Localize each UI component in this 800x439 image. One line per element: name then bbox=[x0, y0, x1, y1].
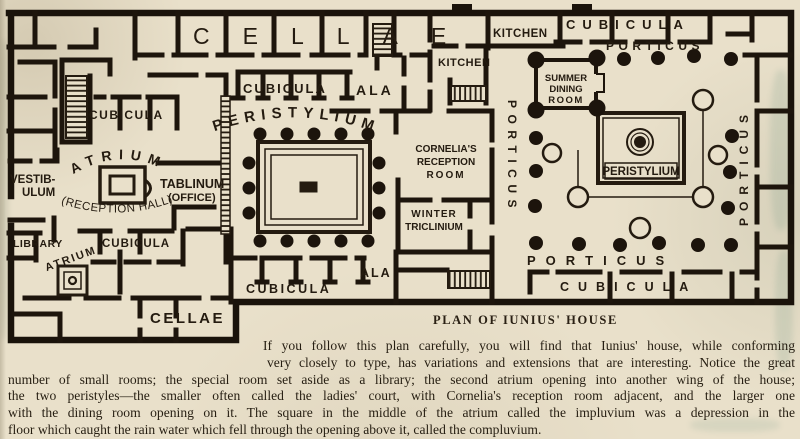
label-kitchen-lower: KITCHEN bbox=[438, 57, 490, 69]
fountain bbox=[627, 129, 653, 155]
plan-caption-title: PLAN OF IUNIUS' HOUSE bbox=[433, 313, 618, 328]
label-cubicula-upper-left: CUBICULA bbox=[89, 108, 164, 122]
label-cubicula-top-right: CUBICULA bbox=[566, 17, 690, 32]
label-summer-3: ROOM bbox=[548, 95, 584, 106]
label-cubicula-bottom-middle: CUBICULA bbox=[246, 282, 331, 296]
caption-paragraph: If you follow this plan carefully, you w… bbox=[8, 338, 795, 439]
floor-plan: CELLAE CUBICULA CUBICULA ALA PERISTYLIUM… bbox=[0, 0, 800, 345]
caption-line: number of small rooms; the special room … bbox=[8, 372, 795, 389]
label-cellae-bottom: CELLAE bbox=[150, 310, 225, 327]
label-porticus-bottom: PORTICUS bbox=[527, 253, 674, 268]
impluvium-main bbox=[100, 167, 151, 203]
caption-line: very closely to type, has variations and… bbox=[267, 355, 795, 372]
label-summer-1: SUMMER bbox=[545, 73, 587, 84]
label-cellae-top: CELLAE bbox=[193, 23, 479, 49]
label-ala-bottom: ALA bbox=[360, 266, 392, 280]
impluvium-small bbox=[58, 266, 87, 295]
label-porticus-top: PORTICUS bbox=[606, 39, 704, 53]
label-cubicula-bottom-right: CUBICULA bbox=[560, 280, 697, 294]
label-atrium-main: ATRIUM bbox=[67, 146, 169, 177]
label-summer-2: DINING bbox=[549, 84, 582, 95]
caption-line: with the dining room opening on it. The … bbox=[8, 405, 795, 422]
label-tablinum: TABLINUM bbox=[160, 177, 224, 191]
label-cubicula-top-middle: CUBICULA bbox=[243, 81, 327, 96]
label-vestibulum-2: ULUM bbox=[22, 187, 55, 199]
label-cornelias-2: RECEPTION bbox=[417, 157, 475, 168]
label-cornelias-3: ROOM bbox=[426, 170, 465, 181]
label-winter-1: WINTER bbox=[411, 209, 456, 220]
scanned-book-page: CELLAE CUBICULA CUBICULA ALA PERISTYLIUM… bbox=[0, 0, 800, 439]
label-ala-top: ALA bbox=[356, 82, 394, 98]
caption-line: the two peristyles—the smaller often cal… bbox=[8, 388, 795, 405]
peristyle-court bbox=[258, 142, 370, 232]
label-library: LIBRARY bbox=[13, 238, 63, 250]
label-cornelias-1: CORNELIA'S bbox=[415, 144, 477, 155]
label-winter-2: TRICLINIUM bbox=[405, 222, 463, 233]
impluvium-basin bbox=[300, 182, 317, 192]
label-peristylium-right: PERISTYLIUM bbox=[602, 166, 679, 178]
label-cubicula-mid-left: CUBICULA bbox=[102, 238, 170, 250]
label-tablinum-office: (OFFICE) bbox=[168, 192, 216, 204]
caption-line: floor which caught the rain water which … bbox=[8, 422, 795, 439]
label-porticus-left-vertical: PORTICUS bbox=[505, 100, 519, 214]
caption-line: If you follow this plan carefully, you w… bbox=[263, 338, 795, 355]
label-reception-hall: (RECEPTION HALL) bbox=[60, 194, 175, 216]
label-kitchen-upper: KITCHEN bbox=[493, 28, 548, 40]
label-vestibulum-1: VESTIB- bbox=[10, 174, 56, 186]
label-porticus-right-vertical: PORTICUS bbox=[737, 108, 751, 226]
